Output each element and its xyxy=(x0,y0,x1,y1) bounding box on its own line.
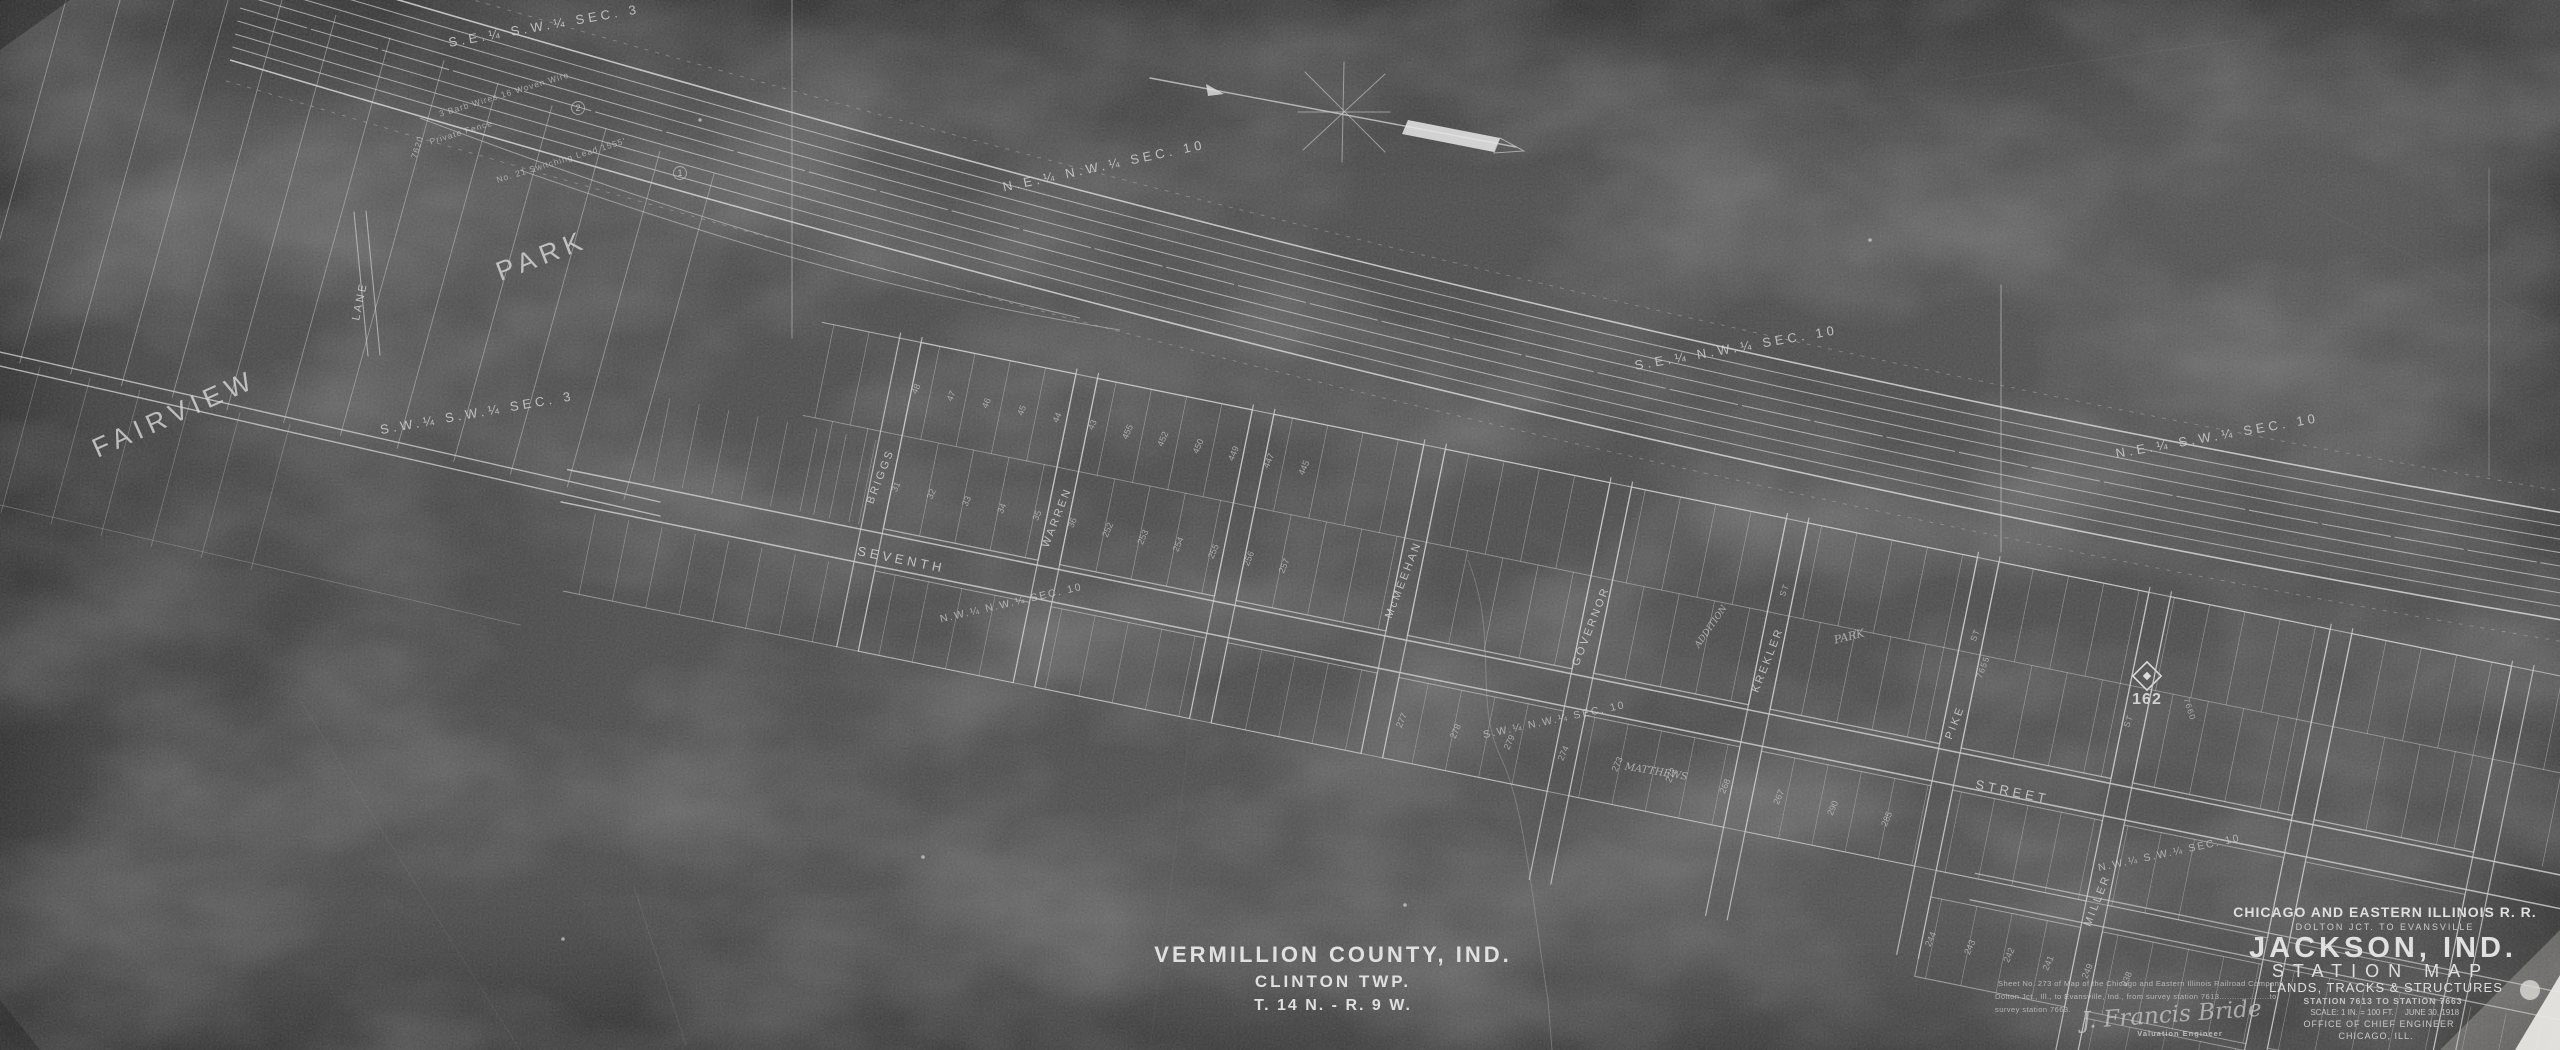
station-map-photostat: 4847464544434554524504494474453132333435… xyxy=(0,0,2560,1050)
map-canvas: 4847464544434554524504494474453132333435… xyxy=(0,0,2560,1050)
film-grain-texture xyxy=(0,0,2560,1050)
